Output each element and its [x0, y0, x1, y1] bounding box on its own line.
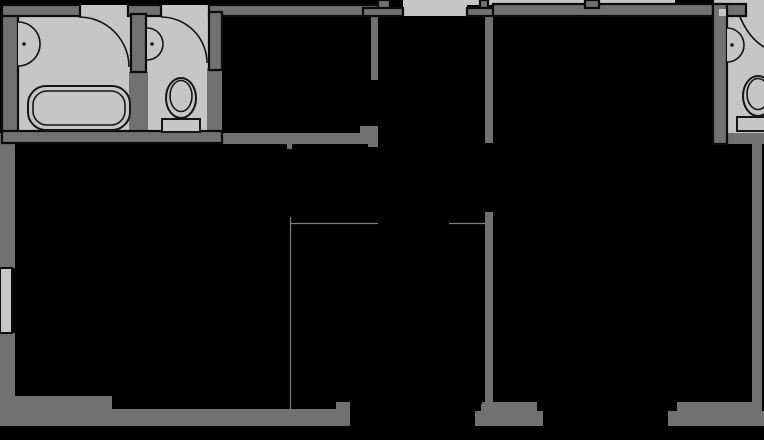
wall-bottom-left-sill: [112, 409, 350, 426]
basin-dot-wc: [150, 42, 154, 46]
floor-plan-canvas: [0, 0, 764, 440]
wall-wc-divider-lower: [129, 72, 148, 136]
wall-stub: [287, 144, 292, 149]
floor-plan-drawing: [0, 0, 764, 440]
wall-notch-right-bathroom: [719, 9, 726, 16]
wall-bottom-center-base: [475, 411, 543, 426]
toilet-tank-right-bathroom: [737, 117, 764, 131]
wall-top-living: [493, 4, 713, 16]
window-group: [0, 268, 12, 333]
window-outline: [0, 268, 12, 333]
wall-hall-right-upper: [485, 13, 493, 143]
wall-bottom-right-base: [668, 411, 764, 426]
wall-bottom-left-column: [0, 392, 14, 426]
toilet-tank-wc: [162, 119, 200, 132]
wall-wc-right-upper: [209, 12, 222, 70]
wall-center-right-lower: [485, 212, 493, 410]
wall-bottom-center-lip: [482, 402, 537, 412]
wall-top-stub: [585, 0, 599, 8]
wall-hall-left-stub: [360, 126, 378, 138]
wall-right-outer: [752, 144, 762, 412]
wall-divider-upper: [131, 14, 146, 72]
basin-dot-left: [22, 42, 26, 46]
wall-left-outer-upper: [0, 135, 15, 268]
wall-wc-right-lower: [207, 68, 222, 136]
toilet-bowl-right-bathroom: [743, 76, 764, 116]
basin-dot-right: [730, 43, 734, 47]
wall-right-bathroom-left: [713, 4, 727, 144]
wall-bottom-left-step: [336, 402, 350, 426]
window-left-wall: [0, 268, 12, 333]
wall-entry-left-cap: [363, 8, 403, 16]
wall-top-middle: [209, 5, 378, 16]
bathtub: [28, 86, 130, 130]
wall-bottom-left-thick: [14, 396, 112, 426]
wall-top-left: [2, 5, 80, 16]
wall-hall-left: [371, 16, 378, 80]
wall-bottom-right-lip: [677, 402, 762, 412]
floor-entry-opening: [403, 0, 467, 16]
wall-left-bathroom-outer: [2, 5, 18, 135]
